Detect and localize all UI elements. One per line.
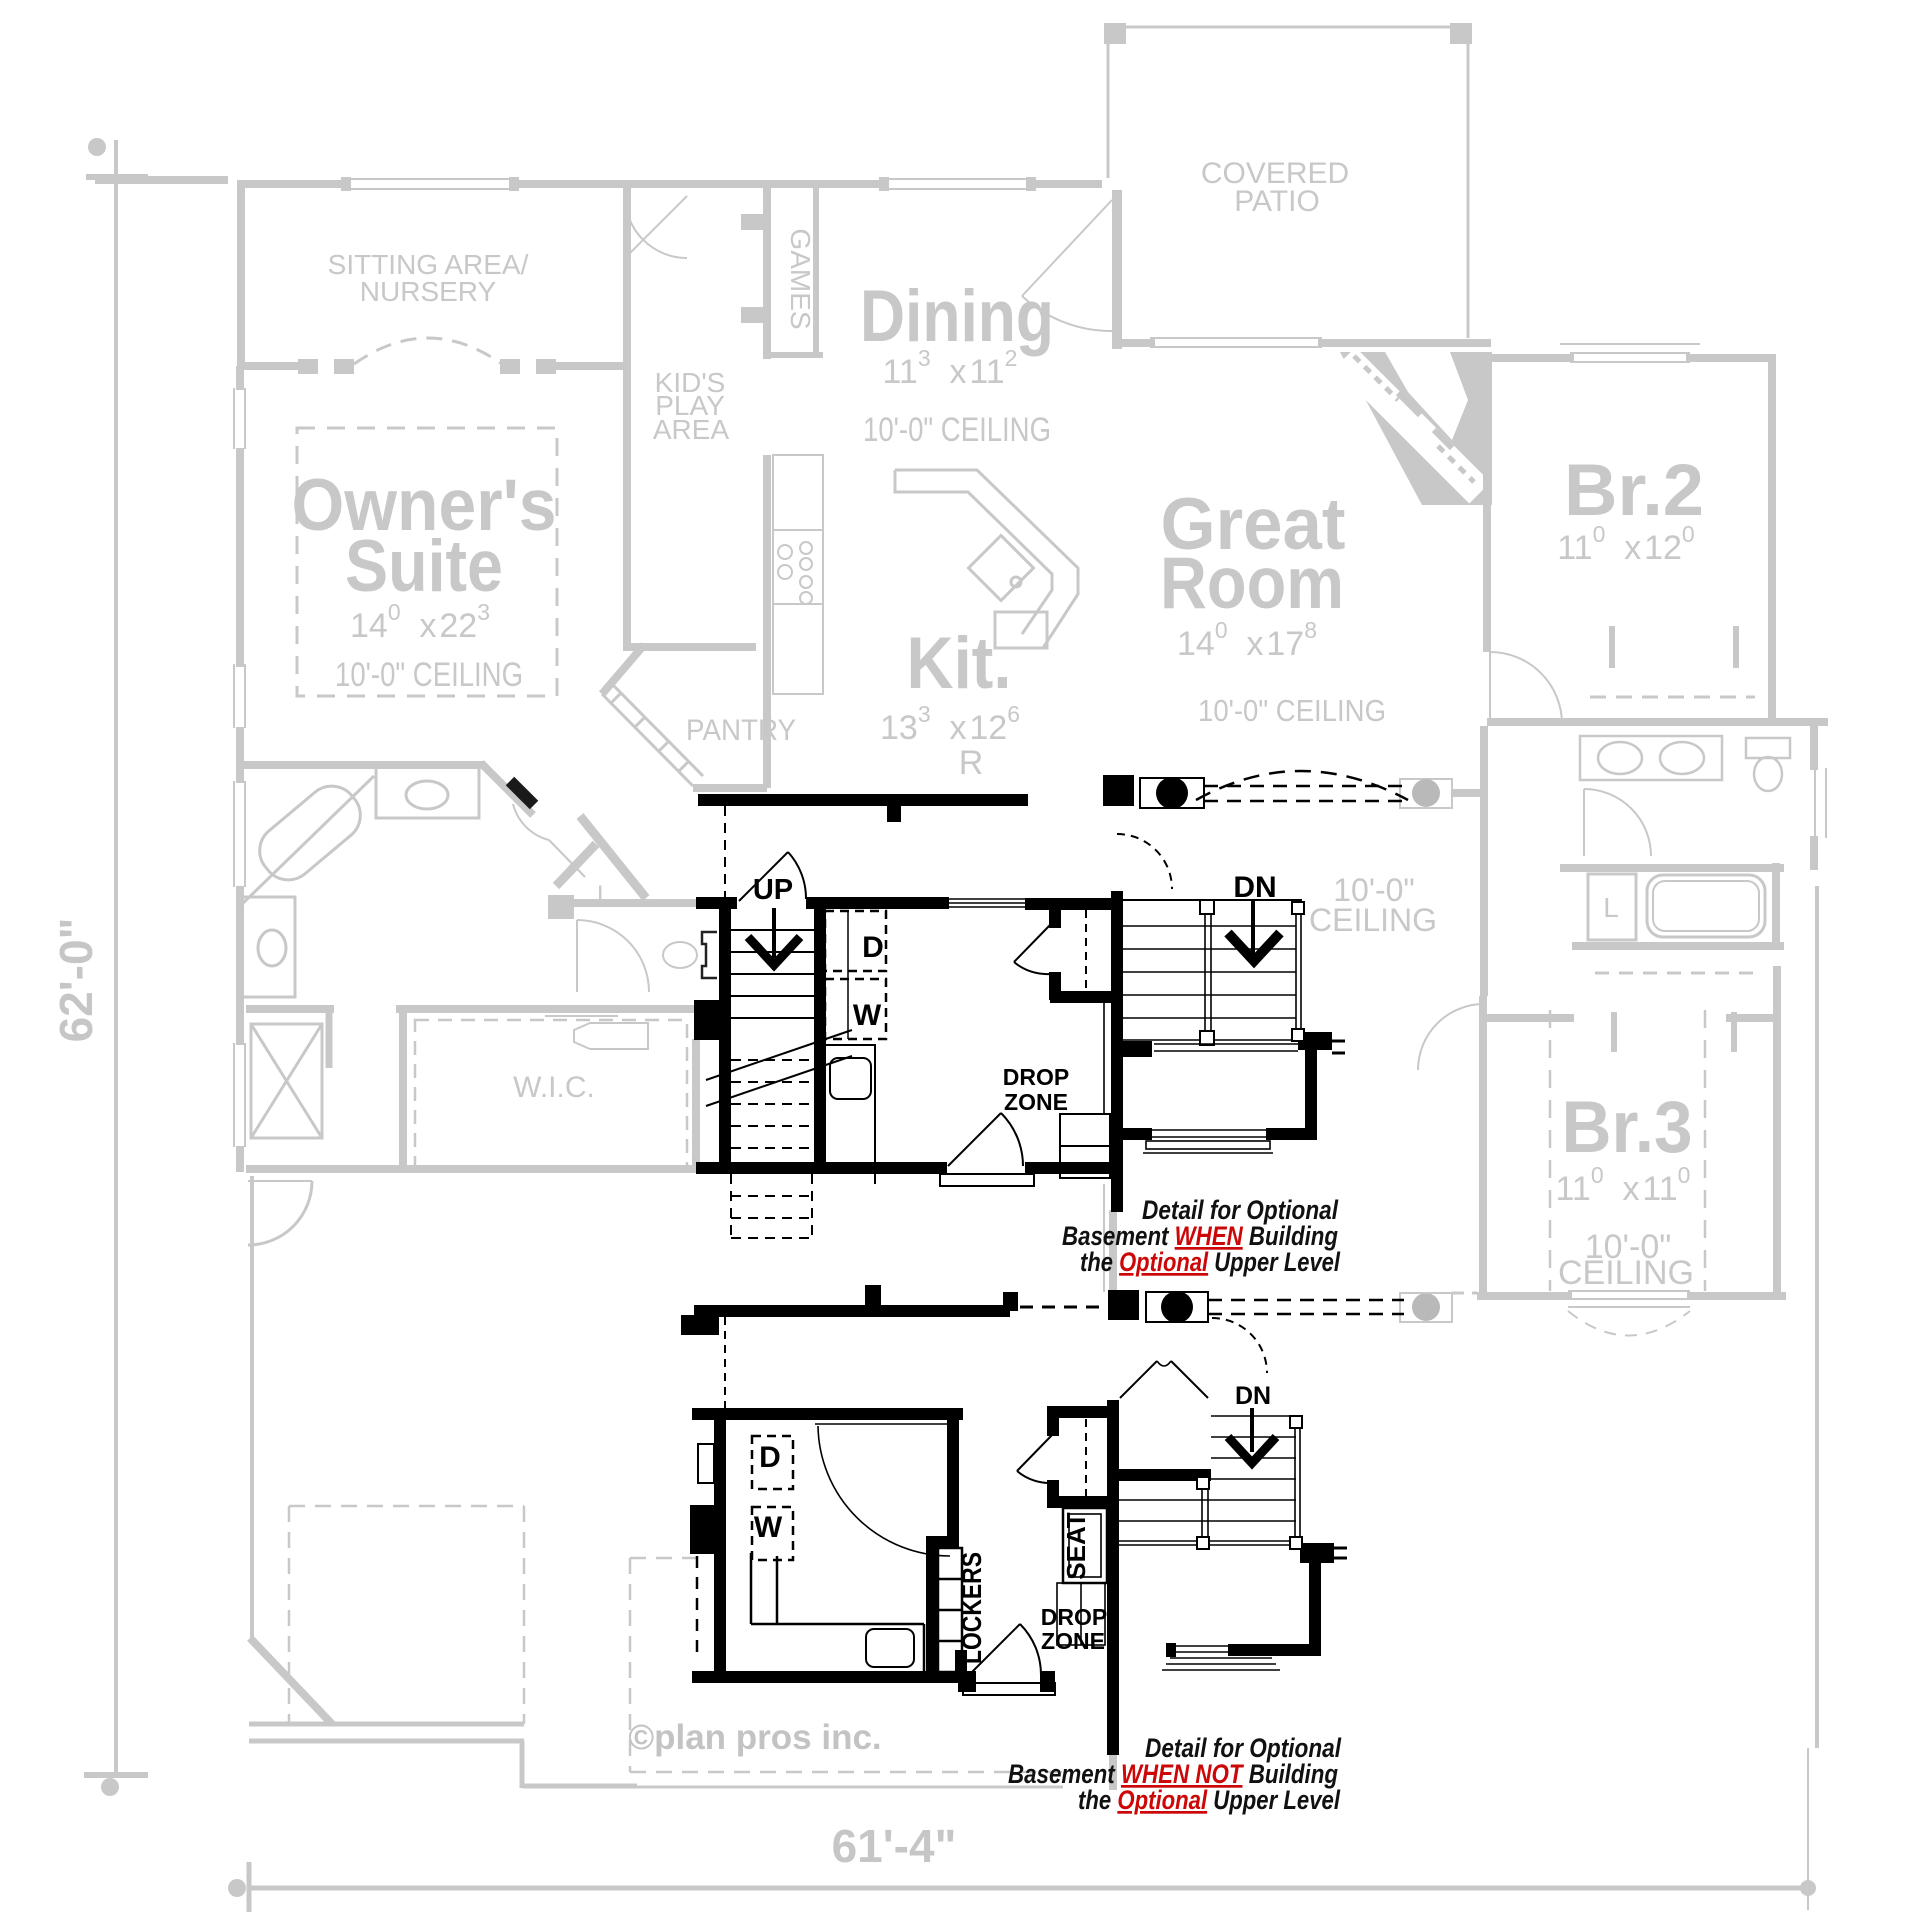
svg-text:NURSERY: NURSERY: [360, 276, 497, 307]
svg-text:10'-0" CEILING: 10'-0" CEILING: [1198, 693, 1386, 728]
svg-text:Br.3: Br.3: [1562, 1087, 1693, 1168]
svg-text:PANTRY: PANTRY: [686, 714, 796, 747]
svg-text:©plan pros inc.: ©plan pros inc.: [628, 1718, 881, 1757]
svg-text:DROP: DROP: [1041, 1604, 1107, 1630]
svg-text:W.I.C.: W.I.C.: [513, 1071, 595, 1104]
svg-text:GAMES: GAMES: [785, 228, 816, 329]
svg-text:L: L: [597, 881, 611, 909]
svg-text:DN: DN: [1233, 871, 1276, 904]
svg-text:LOCKERS: LOCKERS: [956, 1552, 987, 1664]
svg-text:DN: DN: [1235, 1382, 1271, 1410]
svg-text:Br.2: Br.2: [1564, 450, 1704, 531]
svg-text:61'-4": 61'-4": [832, 1820, 957, 1872]
svg-text:D: D: [862, 931, 884, 964]
svg-text:L: L: [1603, 892, 1619, 923]
svg-text:CEILING: CEILING: [1558, 1254, 1694, 1292]
svg-text:62'-0": 62'-0": [50, 918, 102, 1043]
svg-text:W: W: [754, 1511, 783, 1544]
svg-text:Dining: Dining: [860, 276, 1054, 357]
svg-text:PATIO: PATIO: [1234, 185, 1320, 218]
svg-text:the Optional Upper Level: the Optional Upper Level: [1078, 1785, 1340, 1815]
svg-text:10'-0" CEILING: 10'-0" CEILING: [335, 656, 523, 694]
svg-text:DROP: DROP: [1003, 1064, 1069, 1090]
svg-text:UP: UP: [753, 874, 793, 906]
svg-text:AREA: AREA: [653, 414, 730, 445]
svg-text:the Optional Upper Level: the Optional Upper Level: [1080, 1247, 1340, 1277]
svg-text:ZONE: ZONE: [1004, 1089, 1068, 1115]
svg-text:10'-0" CEILING: 10'-0" CEILING: [863, 411, 1051, 449]
svg-text:R: R: [959, 744, 984, 782]
svg-text:D: D: [759, 1441, 781, 1474]
svg-text:ZONE: ZONE: [1041, 1628, 1105, 1654]
svg-text:Suite: Suite: [345, 526, 503, 607]
svg-text:SEAT: SEAT: [1061, 1512, 1091, 1580]
svg-text:CEILING: CEILING: [1309, 902, 1437, 938]
svg-text:Kit.: Kit.: [907, 623, 1012, 704]
svg-text:Room: Room: [1160, 543, 1344, 624]
svg-text:W: W: [853, 999, 882, 1032]
